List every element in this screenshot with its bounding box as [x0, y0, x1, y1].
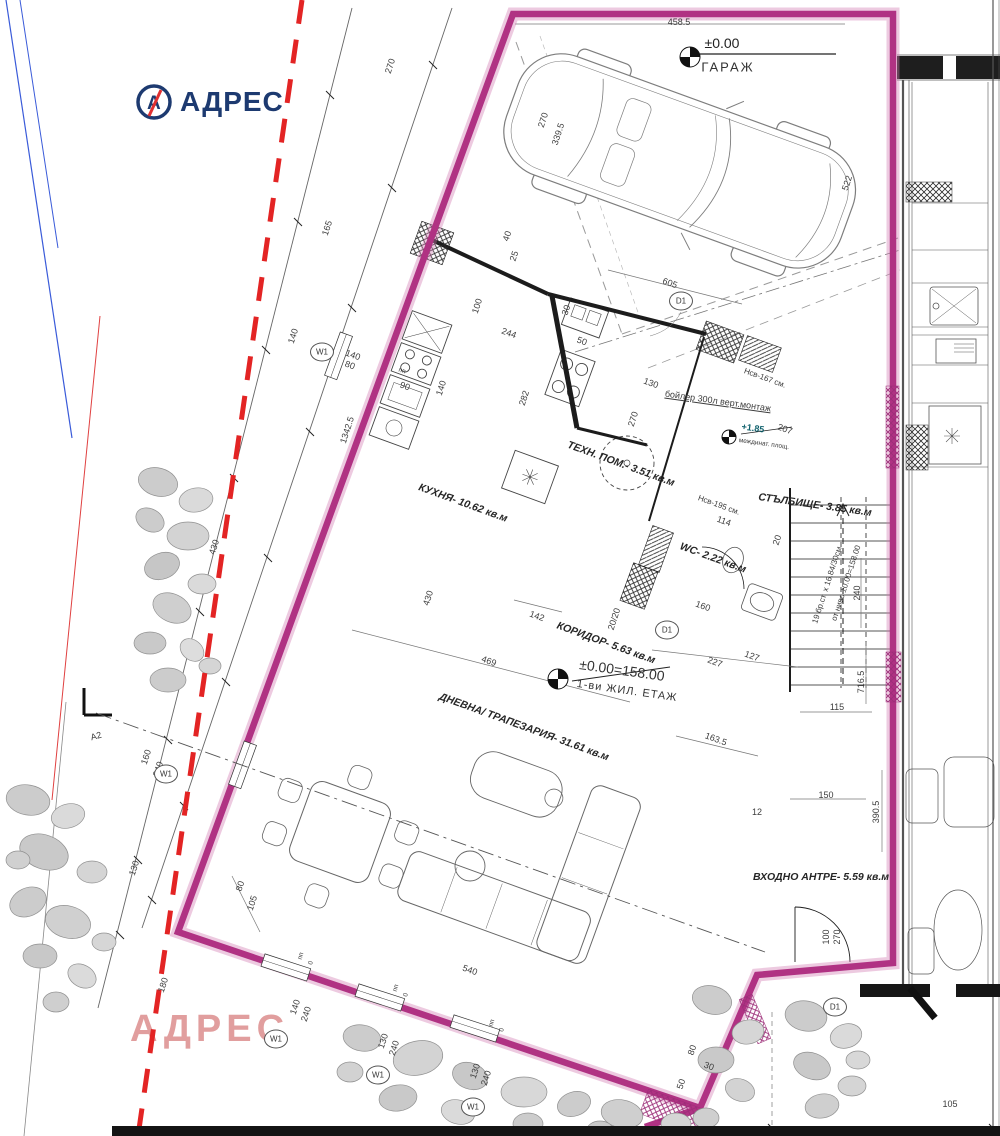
dim-label: 540: [461, 963, 479, 978]
dim-label: 270: [536, 111, 550, 128]
dim-label: 150: [818, 790, 833, 800]
dim-label: 270: [832, 929, 842, 944]
dim-label: 40: [501, 230, 514, 243]
dim-label: 270: [383, 57, 397, 74]
dim-label: 50: [675, 1078, 688, 1091]
dim-label: 90: [399, 380, 412, 393]
dim-label: междинат. площ.: [738, 437, 789, 451]
door-type-bubble: D1: [823, 998, 847, 1017]
dim-label: пп: [392, 984, 401, 993]
dim-label: пп: [297, 952, 306, 961]
dim-label: 115: [830, 702, 844, 712]
dim-label: 105: [942, 1099, 957, 1109]
dim-label: пп: [397, 367, 406, 376]
dim-label: 0: [498, 1027, 506, 1033]
dim-label: 227: [706, 655, 724, 670]
dim-label: 390.5: [871, 801, 881, 824]
annotation-layer: КУХНЯ- 10.62 кв.мТЕХН. ПОМ.- 3.51 кв.мСТ…: [0, 0, 1000, 1136]
dim-label: 114: [716, 514, 733, 528]
dim-label: 130: [642, 376, 660, 391]
dim-label: 240: [852, 585, 862, 600]
dim-label: 716.5: [856, 671, 866, 694]
room-label-garage: ГАРАЖ: [701, 60, 754, 75]
room-label-living-dining: ДНЕВНА/ ТРАПЕЗАРИЯ- 31.61 кв.м: [437, 691, 610, 764]
dim-label: 244: [500, 326, 518, 341]
window-type-bubble: W1: [366, 1066, 390, 1085]
room-label-kitchen: КУХНЯ- 10.62 кв.м: [417, 481, 509, 524]
dim-label: 30: [560, 304, 573, 317]
dim-label: 140: [286, 327, 300, 344]
dim-label: 240: [299, 1005, 313, 1022]
dim-label: 458.5: [668, 17, 691, 27]
dim-label: 105: [245, 894, 259, 911]
section-marker-label: А2: [89, 730, 102, 743]
dim-label: 140: [434, 379, 448, 396]
dim-label: 130: [127, 859, 141, 876]
dim-label: 605: [661, 276, 679, 291]
dim-label: 430: [207, 538, 221, 555]
room-label-entry-hall: ВХОДНО АНТРЕ- 5.59 кв.м: [753, 871, 889, 883]
dim-label: 100: [470, 297, 484, 314]
dim-label: 127: [743, 649, 761, 664]
dim-label: 207: [776, 422, 794, 437]
dim-label: 522: [840, 174, 854, 191]
dim-label: 240: [479, 1069, 493, 1086]
dim-label: 142: [528, 609, 546, 624]
dim-label: 20/20: [606, 607, 622, 632]
dim-label: 160: [694, 599, 712, 614]
dim-label: Нсв-167 см.: [743, 366, 787, 390]
window-type-bubble: W1: [310, 343, 334, 362]
dim-label: 0: [307, 960, 315, 966]
dim-label: 0: [402, 992, 410, 998]
dim-label: 339.5: [550, 122, 566, 147]
dim-label: 12: [752, 807, 762, 817]
door-type-bubble: D1: [669, 292, 693, 311]
door-type-bubble: D1: [655, 621, 679, 640]
dim-label: 469: [480, 654, 498, 669]
dim-label: 50: [576, 335, 589, 348]
garage-level-label: ±0.00: [705, 35, 740, 51]
dim-label: 160: [139, 748, 153, 765]
dim-label: 282: [517, 389, 531, 406]
floor-plan-canvas: АДРЕС: [0, 0, 1000, 1136]
dim-label: 25: [508, 250, 521, 263]
room-label-staircase: СТЪЛБИЩЕ- 3.85 кв.м: [758, 491, 873, 519]
dim-label: 165: [320, 219, 334, 236]
landing-level-label: +1.85: [741, 421, 765, 434]
dim-label: 80: [344, 359, 357, 372]
window-type-bubble: W1: [154, 765, 178, 784]
window-type-bubble: W1: [264, 1030, 288, 1049]
dim-label: 80: [686, 1044, 699, 1057]
dim-label: 20: [771, 534, 784, 547]
room-label-wc: WC- 2.22 кв.м: [678, 540, 748, 575]
dim-label: 30: [703, 1060, 716, 1073]
dim-label: 100: [821, 929, 831, 944]
dim-label: 240: [387, 1039, 401, 1056]
boiler-note: бойлер 300л верт.монтаж: [664, 389, 771, 414]
dim-label: пп: [488, 1019, 497, 1028]
dim-label: 180: [156, 976, 170, 993]
dim-label: 1342.5: [338, 415, 356, 444]
dim-label: 430: [421, 589, 435, 606]
dim-label: 270: [626, 410, 640, 427]
dim-label: 80: [234, 880, 247, 893]
dim-label: 163.5: [704, 730, 729, 747]
window-type-bubble: W1: [461, 1098, 485, 1117]
room-label-tech-room: ТЕХН. ПОМ.- 3.51 кв.м: [566, 439, 677, 489]
